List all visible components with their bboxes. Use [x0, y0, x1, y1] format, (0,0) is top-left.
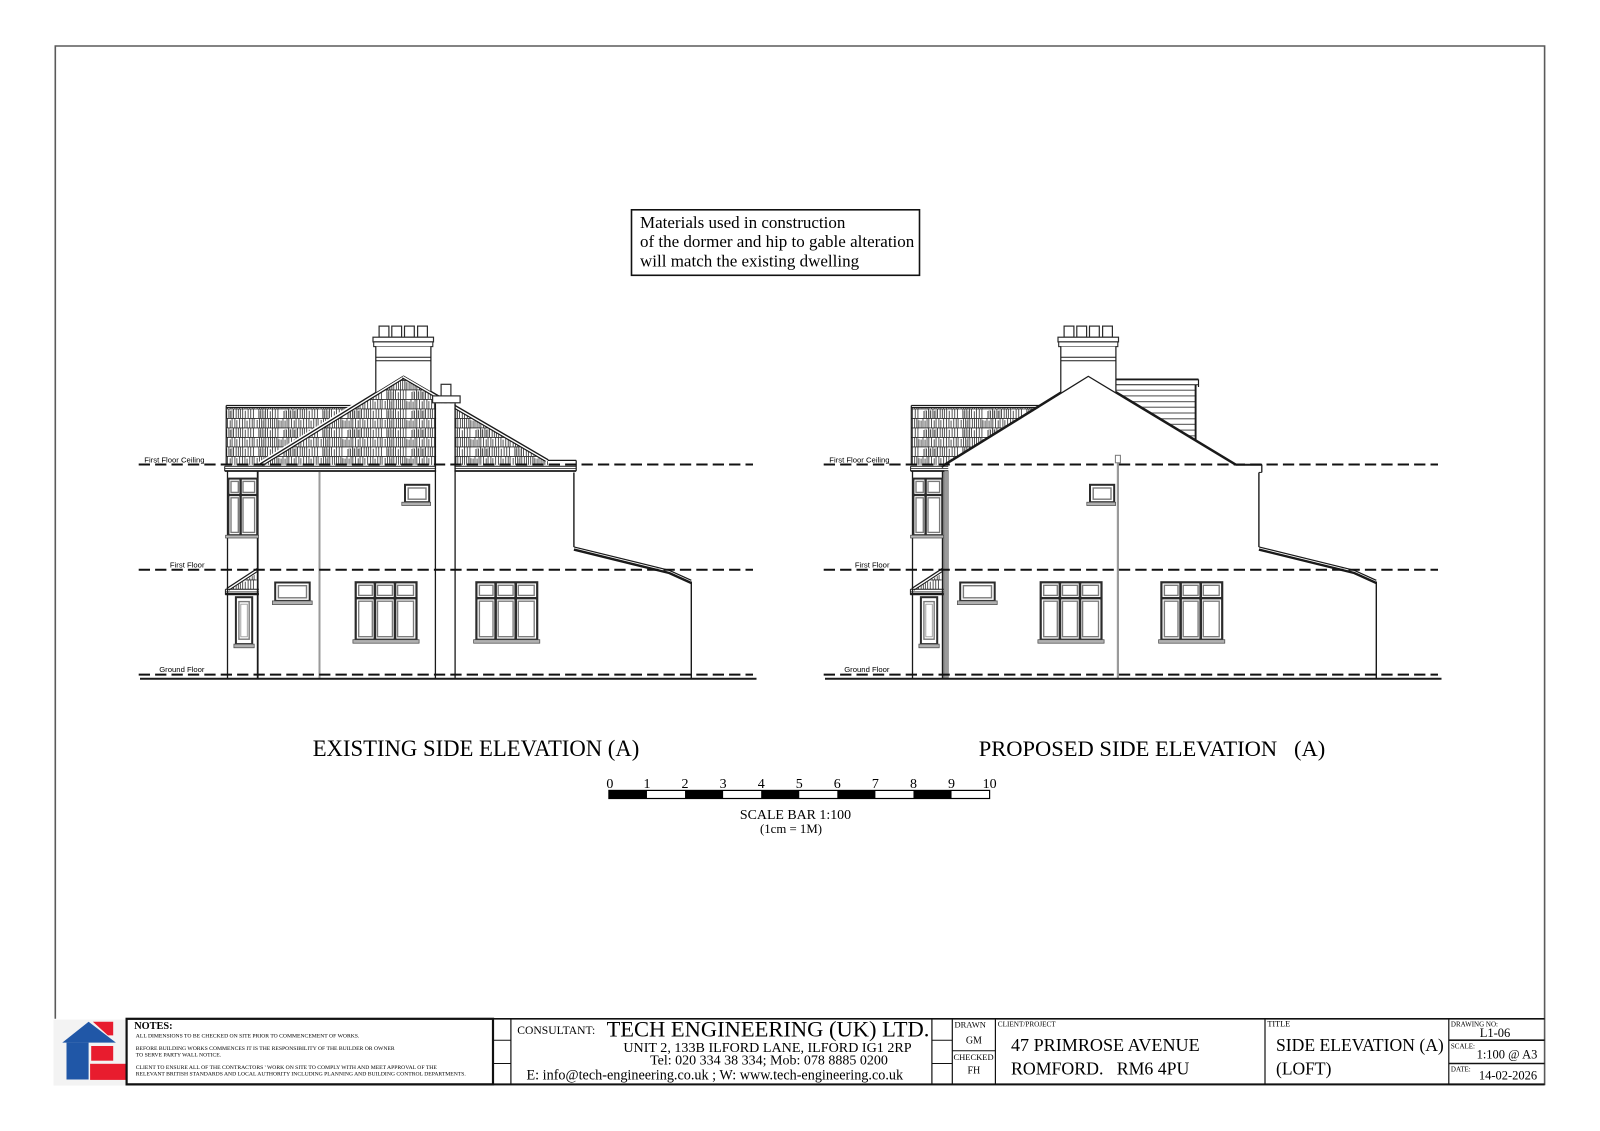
svg-text:First Floor: First Floor: [170, 561, 205, 570]
svg-text:TO SERVE PARTY WALL NOTICE.: TO SERVE PARTY WALL NOTICE.: [136, 1053, 222, 1059]
svg-text:First Floor Ceiling: First Floor Ceiling: [144, 456, 204, 465]
svg-text:RELEVANT BRITISH STANDARDS AND: RELEVANT BRITISH STANDARDS AND LOCAL AUT…: [136, 1072, 467, 1078]
svg-text:L1-06: L1-06: [1480, 1026, 1511, 1040]
svg-text:PROPOSED SIDE ELEVATION (A): PROPOSED SIDE ELEVATION (A): [979, 736, 1325, 761]
svg-text:1:100 @ A3: 1:100 @ A3: [1477, 1047, 1538, 1061]
svg-text:8: 8: [910, 777, 917, 792]
svg-text:SIDE ELEVATION (A): SIDE ELEVATION (A): [1276, 1035, 1444, 1055]
svg-text:4: 4: [758, 777, 765, 792]
svg-text:6: 6: [834, 777, 841, 792]
svg-text:0: 0: [606, 777, 613, 792]
svg-text:will match the existing dwelli: will match the existing dwelling: [640, 251, 860, 270]
svg-text:9: 9: [948, 777, 955, 792]
svg-text:3: 3: [720, 777, 727, 792]
svg-text:E: info@tech-engineering.co.uk: E: info@tech-engineering.co.uk ; W: www.…: [527, 1068, 904, 1084]
svg-text:BEFORE BUILDING WORKS COMMENCE: BEFORE BUILDING WORKS COMMENCES IT IS TH…: [136, 1046, 395, 1052]
svg-text:Ground Floor: Ground Floor: [844, 665, 890, 674]
svg-text:CONSULTANT:: CONSULTANT:: [517, 1024, 595, 1037]
svg-text:ALL DIMENSIONS TO BE CHECKED O: ALL DIMENSIONS TO BE CHECKED ON SITE PRI…: [136, 1034, 360, 1040]
svg-text:of the dormer and hip to gable: of the dormer and hip to gable alteratio…: [640, 232, 915, 251]
svg-text:14-02-2026: 14-02-2026: [1479, 1069, 1537, 1083]
svg-text:7: 7: [872, 777, 879, 792]
svg-text:DATE:: DATE:: [1451, 1065, 1471, 1073]
svg-text:NOTES:: NOTES:: [134, 1021, 172, 1032]
svg-text:Ground Floor: Ground Floor: [159, 665, 205, 674]
svg-text:TITLE: TITLE: [1267, 1020, 1290, 1029]
svg-text:GM: GM: [966, 1036, 982, 1047]
svg-text:CLIENT/PROJECT: CLIENT/PROJECT: [998, 1021, 1057, 1029]
svg-text:47 PRIMROSE AVENUE: 47 PRIMROSE AVENUE: [1011, 1035, 1200, 1055]
svg-text:TECH ENGINEERING (UK) LTD.: TECH ENGINEERING (UK) LTD.: [607, 1016, 930, 1041]
svg-text:2: 2: [682, 777, 689, 792]
svg-text:First Floor Ceiling: First Floor Ceiling: [829, 456, 889, 465]
svg-text:Materials used in construction: Materials used in construction: [640, 213, 846, 232]
svg-text:(LOFT): (LOFT): [1276, 1058, 1332, 1078]
svg-text:FH: FH: [968, 1066, 981, 1077]
svg-text:Tel: 020 334 38 334; Mob: 078: Tel: 020 334 38 334; Mob: 078 8885 0200: [650, 1054, 888, 1069]
svg-text:5: 5: [796, 777, 803, 792]
svg-text:First Floor: First Floor: [855, 561, 890, 570]
svg-text:EXISTING SIDE ELEVATION (A): EXISTING SIDE ELEVATION (A): [313, 736, 640, 761]
svg-text:10: 10: [983, 777, 997, 792]
svg-text:(1cm = 1M): (1cm = 1M): [760, 822, 822, 836]
svg-text:1: 1: [644, 777, 651, 792]
svg-text:CHECKED: CHECKED: [954, 1052, 994, 1062]
svg-text:DRAWN: DRAWN: [955, 1019, 986, 1029]
svg-text:CLIENT TO ENSURE ALL OF THE CO: CLIENT TO ENSURE ALL OF THE CONTRACTORS …: [136, 1065, 438, 1071]
svg-text:SCALE BAR 1:100: SCALE BAR 1:100: [740, 808, 851, 823]
svg-text:SCALE:: SCALE:: [1451, 1042, 1475, 1050]
svg-text:ROMFORD. RM6 4PU: ROMFORD. RM6 4PU: [1011, 1058, 1190, 1078]
